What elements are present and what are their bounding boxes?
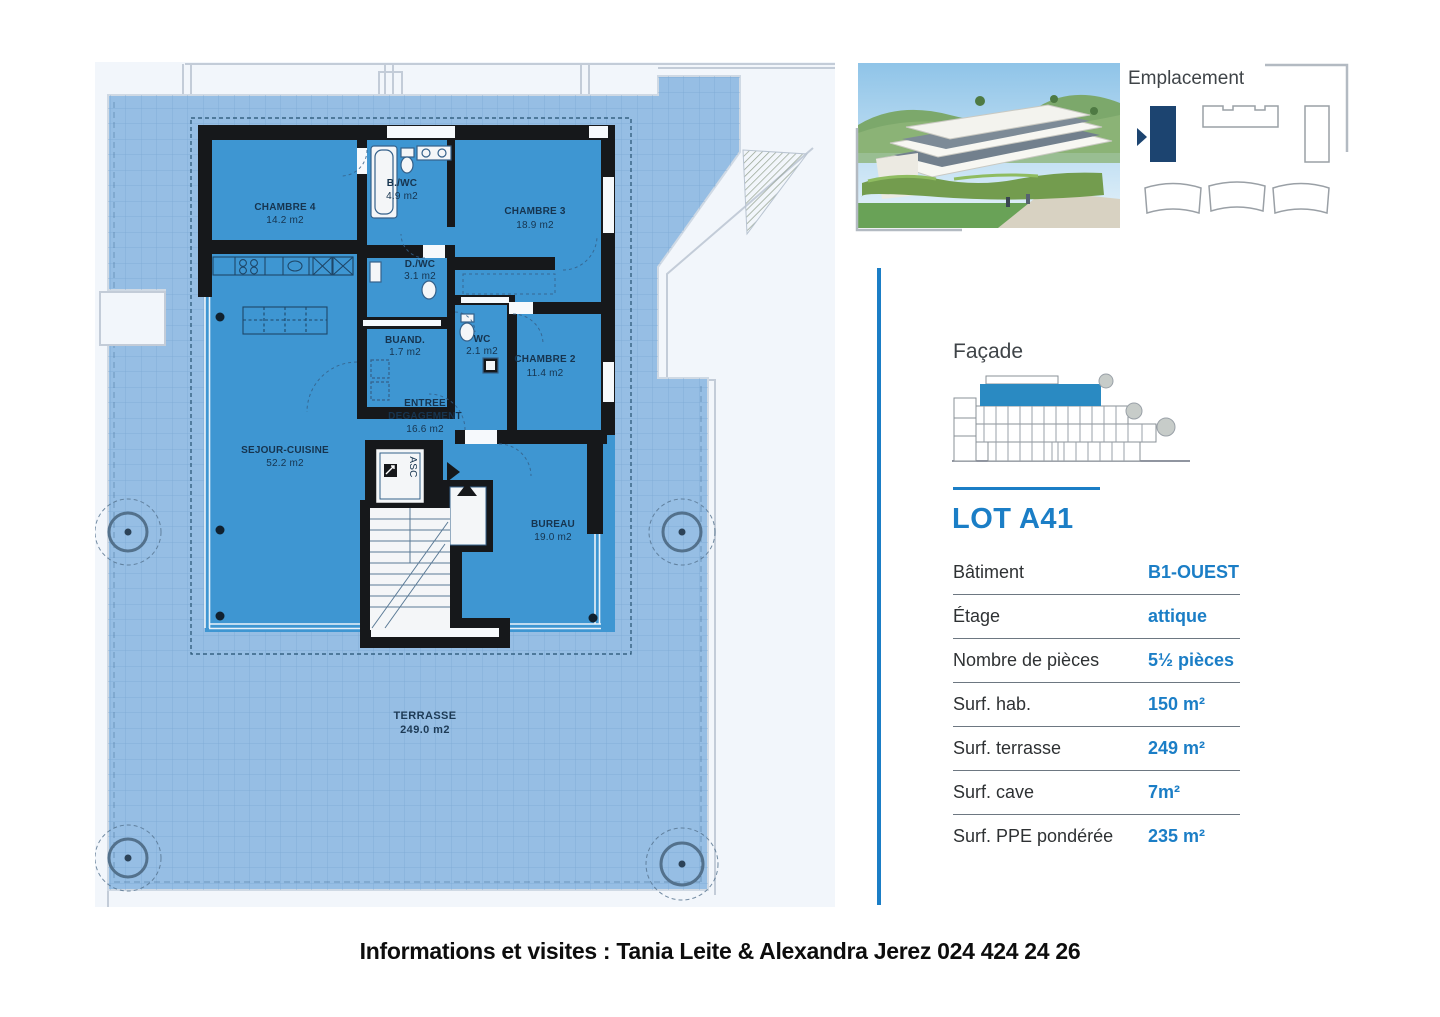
- elevator-label: ASC: [407, 456, 418, 477]
- highlighted-building: [1150, 106, 1176, 162]
- elevator-icon: [384, 464, 397, 477]
- location-arrow-icon: [1137, 128, 1147, 146]
- emplacement-title: Emplacement: [1128, 68, 1244, 90]
- row-value: 249 m²: [1148, 738, 1205, 759]
- room-label: CHAMBRE 2: [514, 354, 575, 365]
- svg-text:52.2 m2: 52.2 m2: [266, 458, 304, 469]
- svg-text:DEGAGEMENT: DEGAGEMENT: [388, 411, 462, 422]
- row-label: Étage: [953, 606, 1000, 627]
- svg-text:18.9 m2: 18.9 m2: [516, 220, 554, 231]
- room-label: CHAMBRE 3: [504, 206, 565, 217]
- room-label: SEJOUR-CUISINE: [241, 445, 329, 456]
- table-row: Étage attique: [953, 595, 1240, 639]
- table-row: Surf. PPE pondérée 235 m²: [953, 815, 1240, 858]
- svg-text:1.7 m2: 1.7 m2: [389, 347, 421, 358]
- row-value: B1-OUEST: [1148, 562, 1239, 583]
- svg-text:19.0 m2: 19.0 m2: [534, 532, 572, 543]
- table-row: Surf. hab. 150 m²: [953, 683, 1240, 727]
- vertical-divider: [877, 268, 881, 905]
- table-row: Bâtiment B1-OUEST: [953, 551, 1240, 595]
- floor-plan: ASC: [95, 62, 835, 907]
- room-label: B./WC: [387, 178, 417, 189]
- row-label: Surf. PPE pondérée: [953, 826, 1113, 847]
- left-notch: [100, 292, 165, 345]
- table-row: Nombre de pièces 5½ pièces: [953, 639, 1240, 683]
- stairs: [370, 508, 450, 630]
- room-label: BUREAU: [531, 519, 575, 530]
- attique-highlight: [980, 384, 1101, 406]
- table-row: Surf. terrasse 249 m²: [953, 727, 1240, 771]
- svg-text:16.6 m2: 16.6 m2: [406, 424, 444, 435]
- row-label: Bâtiment: [953, 562, 1024, 583]
- facade-title: Façade: [953, 340, 1023, 364]
- room-label: TERRASSE: [393, 710, 456, 722]
- room-label: CHAMBRE 4: [254, 202, 315, 213]
- facade-drawing: [950, 372, 1192, 467]
- contact-footer: Informations et visites : Tania Leite & …: [0, 938, 1440, 965]
- row-value: 7m²: [1148, 782, 1180, 803]
- svg-text:2.1 m2: 2.1 m2: [466, 346, 498, 357]
- svg-text:4.9 m2: 4.9 m2: [386, 191, 418, 202]
- accent-divider: [953, 487, 1100, 490]
- row-label: Surf. cave: [953, 782, 1034, 803]
- emplacement-diagram: [1133, 96, 1333, 216]
- row-value: 5½ pièces: [1148, 650, 1234, 671]
- row-label: Surf. terrasse: [953, 738, 1061, 759]
- room-label: WC: [473, 334, 490, 345]
- lot-details-table: Bâtiment B1-OUEST Étage attique Nombre d…: [953, 551, 1240, 858]
- table-row: Surf. cave 7m²: [953, 771, 1240, 815]
- row-label: Nombre de pièces: [953, 650, 1099, 671]
- row-value: 235 m²: [1148, 826, 1205, 847]
- svg-text:14.2 m2: 14.2 m2: [266, 215, 304, 226]
- svg-text:3.1 m2: 3.1 m2: [404, 271, 436, 282]
- lot-title: LOT A41: [952, 503, 1074, 536]
- room-label: D./WC: [405, 259, 435, 270]
- row-label: Surf. hab.: [953, 694, 1031, 715]
- svg-text:11.4 m2: 11.4 m2: [527, 368, 564, 379]
- row-value: 150 m²: [1148, 694, 1205, 715]
- row-value: attique: [1148, 606, 1207, 627]
- room-label: BUAND.: [385, 335, 425, 346]
- svg-text:249.0 m2: 249.0 m2: [400, 724, 450, 736]
- room-label: ENTREE: [404, 398, 446, 409]
